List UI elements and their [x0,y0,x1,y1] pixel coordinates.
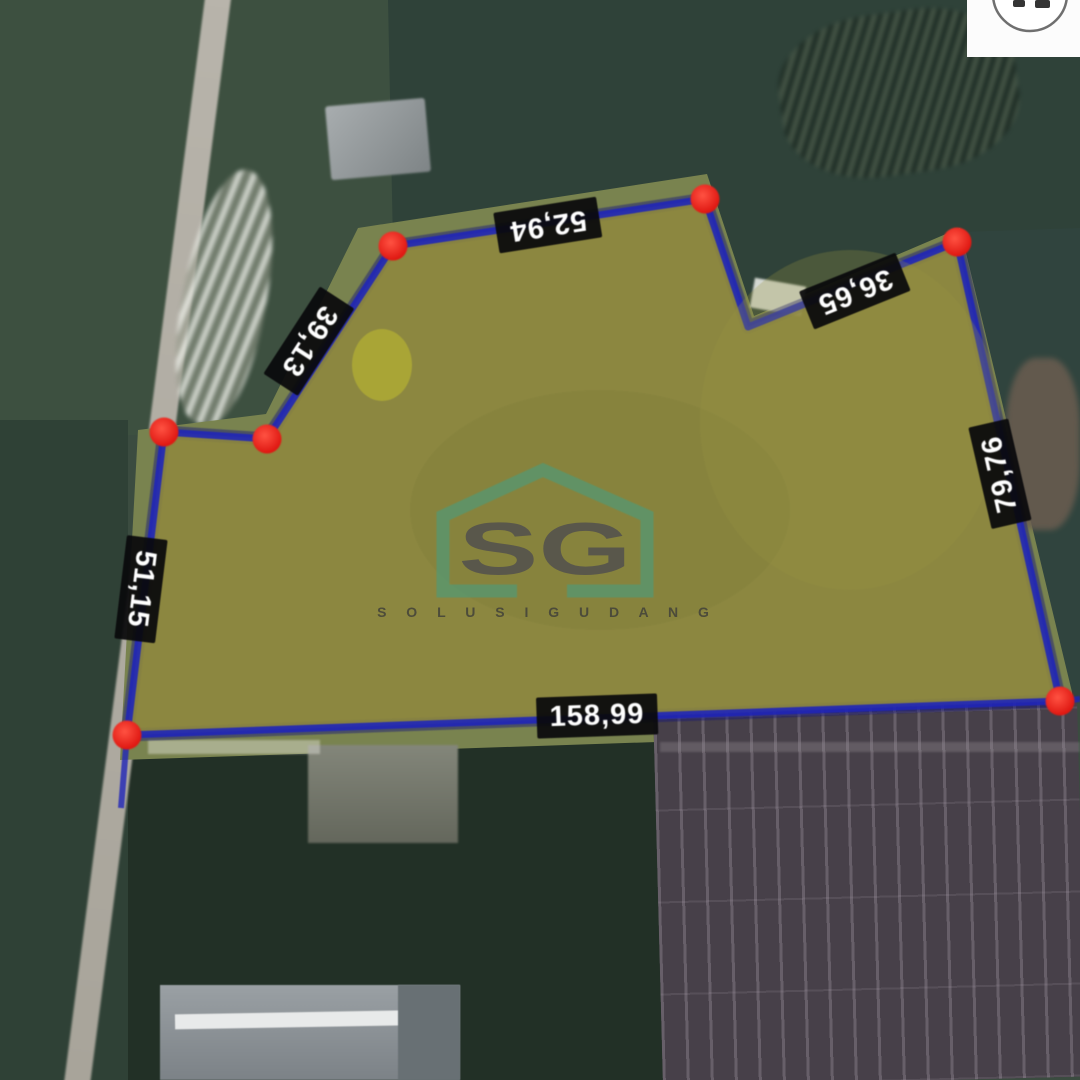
vertex-marker-dot [943,228,972,257]
corner-logo-box [967,0,1080,57]
bright-grass-patch [352,329,412,401]
measurement-label-bottom: 158,99 [536,693,658,738]
vertex-marker-dot [253,425,282,454]
corner-logo-circle-icon [967,0,1080,57]
vertex-marker-dot [691,185,720,214]
vertex-marker-dot [150,418,179,447]
vertex-marker-dot [379,232,408,261]
watermark-wordmark: S O L U S I G U D A N G [377,604,717,620]
satellite-map-view: /* stroke applied after populate below *… [0,0,1080,1080]
vertex-marker-dot [1046,687,1075,716]
vertex-marker-dot [113,721,142,750]
watermark-monogram: SG [458,507,631,592]
